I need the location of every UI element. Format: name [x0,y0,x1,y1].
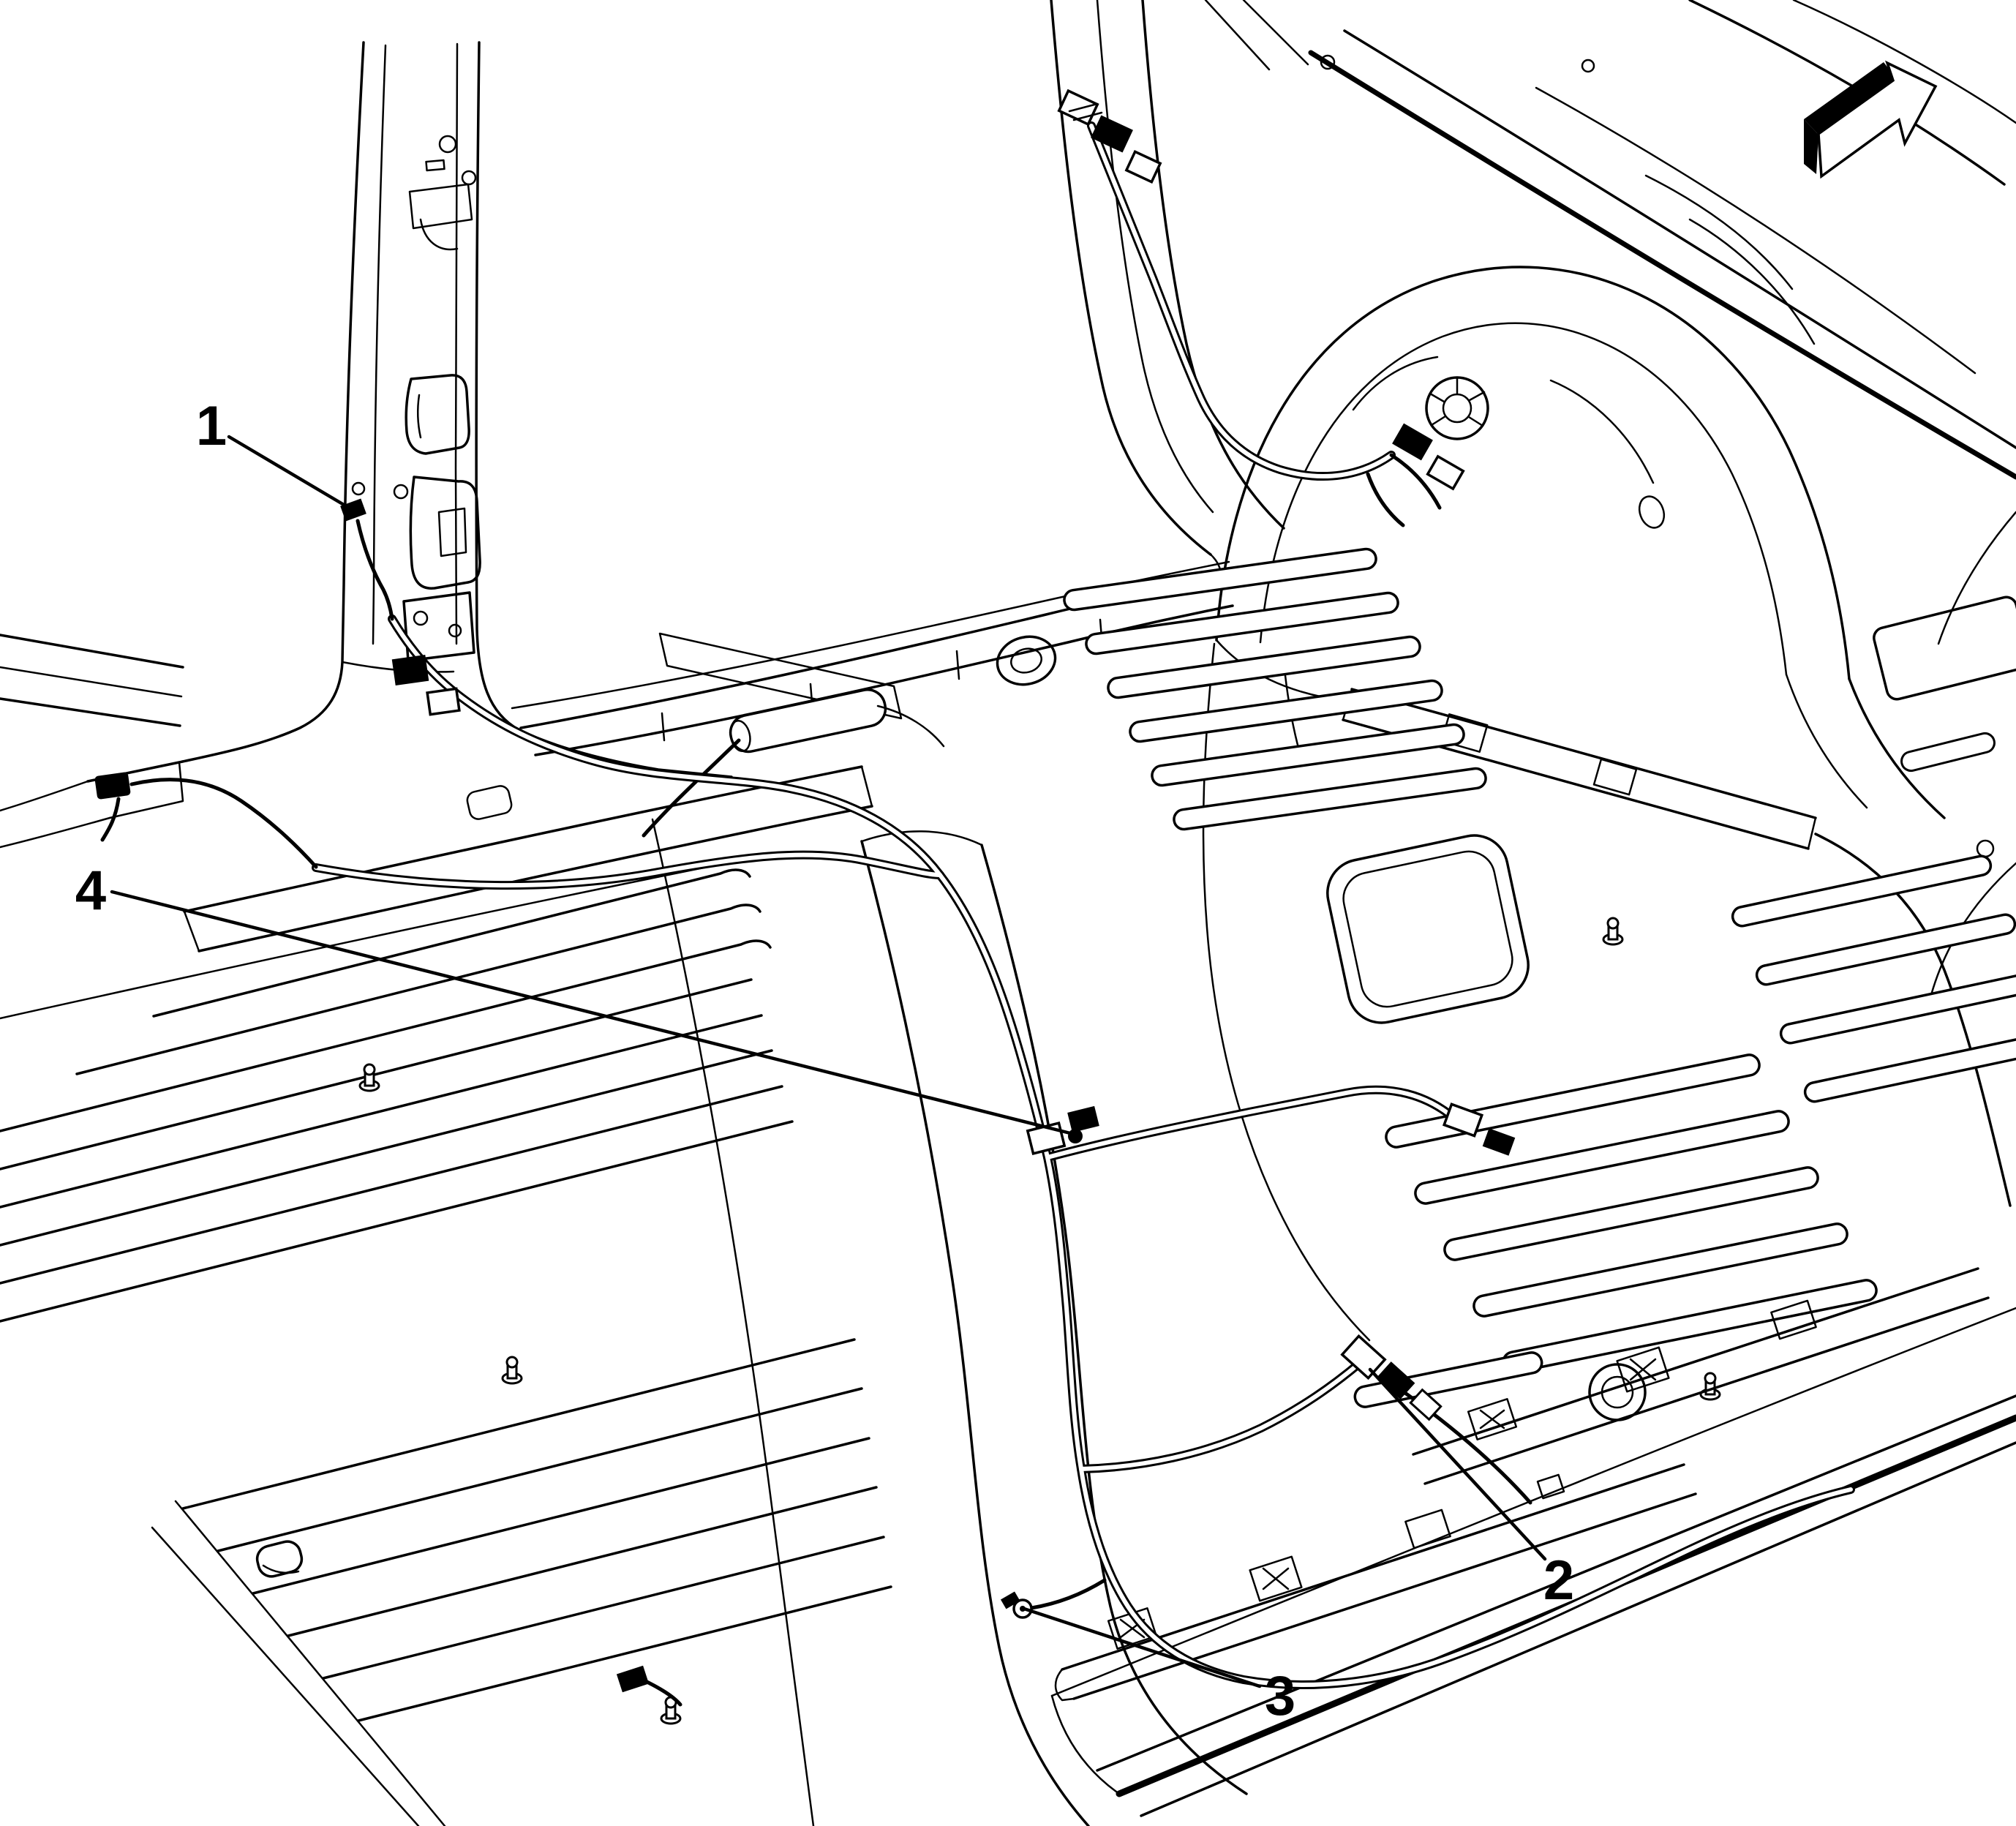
panel-hole [1977,841,1993,857]
b-pillar-cutout-upper-inner [418,395,421,437]
wheelhouse-inner [1260,323,1786,675]
mid-floor-seam [652,819,813,1826]
vehicle-body-structure [0,0,2016,995]
rear-floor-ribs-center [1063,548,1487,831]
harness-branch-seat-core [1081,1364,1359,1469]
rail-front-endcap [1056,1669,1074,1700]
rail-front-bottom [1074,1494,1696,1699]
callout-1: 1 [196,395,356,512]
stud-head [1608,918,1618,928]
quarter-bracket-plate [1872,595,2016,701]
harness-routing-illustration: 1 2 3 4 [0,0,2016,1826]
seat-wire-stub [878,706,944,746]
floor-rib [0,1121,792,1321]
rail-bracket-x [1263,1568,1288,1589]
grommet-outer [1590,1364,1645,1420]
front-floor-ribs-lower [152,1340,891,1826]
b-pillar-hole [440,136,456,152]
connector-cluster-4b [1067,1106,1099,1132]
callout-2-label: 2 [1543,1549,1574,1612]
rocker-connector-wire [132,780,316,867]
sill-tick [957,651,959,679]
rail-clip [1538,1475,1564,1498]
b-pillar-outer-right [476,42,731,777]
roof-brace [1206,0,1269,69]
sill-line [0,699,180,726]
sill-line [0,667,181,696]
wheelhouse-cap-inner [1443,394,1471,422]
floor-rib [358,1587,891,1721]
rear-floor-ribs-far-right [1731,854,2016,1103]
floor-rib [0,941,770,1131]
crossmember-endcap [184,912,199,951]
front-of-vehicle-arrow-icon [1804,62,1936,176]
b-pillar-hole [414,612,427,625]
connector-bottom-left [617,1666,649,1692]
rear-crossmember-endcap [1343,689,1816,849]
floor-plug [255,1538,304,1579]
callout-3-label: 3 [1265,1665,1295,1727]
c-pillar [1051,0,1284,585]
b-pillar-hole [449,625,461,636]
weld-stud [503,1357,522,1383]
tunnel-top-edge [862,831,982,845]
wheelhouse-slot [1635,493,1668,531]
wheelhouse-detail [1353,357,1437,410]
stud-head [1705,1373,1715,1383]
seat-rails [1056,1269,1988,1700]
wheelhouse-wire [1391,455,1440,508]
crossmember-bracket [1594,759,1636,794]
c-pillar-outer [1051,0,1211,555]
wheelhouse-detail [1551,380,1653,483]
harness-cpillar-trunk-core [1091,126,1391,476]
sill-line [0,635,183,667]
crossmember-endcap [862,767,872,806]
small-floor-opening [465,784,513,821]
stud-head [507,1357,517,1367]
floor-rib [183,1340,854,1508]
floor-access-opening [1321,829,1535,1029]
floor-grommet [1590,1364,1645,1420]
callout-1-label: 1 [196,395,227,457]
fastener-cluster-4 [1068,1129,1083,1143]
harness-branch-seat [1081,1364,1359,1469]
floor-rib [0,1051,772,1245]
floor-rib [253,1438,869,1593]
callout-2: 2 [1370,1369,1574,1612]
panel-hole [1582,60,1594,72]
connector-cpillar-c [1127,151,1160,181]
floor-pan [0,548,2016,1826]
b-pillar-cutout-upper [406,375,469,454]
sill-tick [662,713,664,740]
front-door-sill [0,635,183,847]
seat-adjuster-assembly [644,634,944,835]
b-pillar-hole [394,485,407,498]
b-pillar-top-bracket [410,184,472,228]
b-pillar-inner-left [373,45,385,644]
diagram-canvas: 1 2 3 4 [0,0,2016,1826]
floor-grommet [992,631,1061,691]
callouts: 1 2 3 4 [75,395,1574,1727]
connector-branch-end-b [1483,1128,1516,1155]
seat-wire [644,740,739,835]
stud-head [364,1064,375,1075]
tunnel-left-edge [862,841,1088,1826]
floor-rib [0,980,751,1169]
callout-1-leader [229,437,356,512]
rear-crossmember-top [1352,689,1816,818]
harness-cpillar-trunk [1091,126,1391,476]
connector-wheelhouse-a [1392,424,1433,461]
capsule-rib [1755,913,2016,986]
ground-wire [1031,1580,1105,1608]
capsule-rib [1803,1030,2016,1103]
b-pillar-hole [462,171,475,184]
connector-rocker [94,772,131,800]
capsule-rib [1779,972,2016,1045]
connector-pretensioner-2 [427,688,459,714]
rear-sill [1052,1308,2016,1816]
floor-edge [176,1501,445,1826]
right-edge-curve [1938,512,2016,644]
floor-rib [323,1537,884,1678]
sill-end-curve [1052,1696,1119,1794]
floor-rib [77,905,760,1074]
front-floor-ribs [0,870,792,1321]
rail-bracket-x [1481,1410,1504,1428]
roof-brace [1244,0,1308,64]
rocker-edge [0,818,110,847]
b-pillar-hole [353,483,364,495]
quarter-bracket-slot [1900,732,1996,773]
callout-4-label: 4 [75,860,106,922]
connector-wheelhouse-b [1428,456,1464,489]
c-pillar-rear [1143,0,1284,528]
wheelhouse-wire-stub [1368,474,1403,525]
b-pillar-cutout-lower [410,477,480,588]
rocker-edge [0,781,88,811]
b-pillar-slot [426,160,445,170]
grommet-outer [992,631,1061,691]
floor-rib [154,870,750,1016]
ground-terminal [1001,1591,1031,1618]
floor-rib [218,1389,862,1551]
capsule-rib [1731,854,1993,928]
opening-inner [1339,846,1517,1012]
c-pillar-inner [1097,0,1213,512]
wheelhouse [1216,267,1849,761]
floor-rib [0,1015,761,1207]
weld-stud [1603,918,1622,944]
b-pillar-cutout-tab [439,508,466,556]
connector-pretensioner [392,655,429,685]
seat-crossmember-rear [199,806,872,951]
floor-rib [0,1086,782,1283]
